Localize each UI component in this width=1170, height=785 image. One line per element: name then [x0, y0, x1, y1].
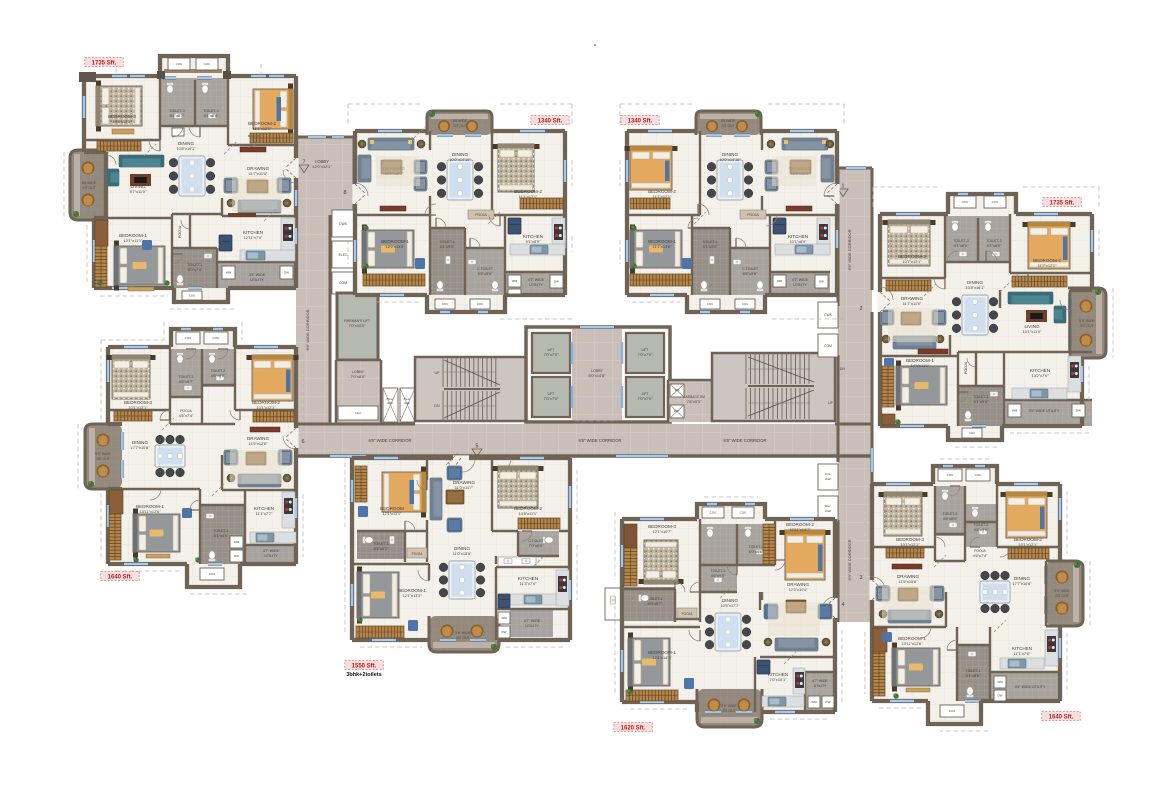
svg-text:WM: WM — [501, 616, 507, 620]
svg-text:14'4"x11'1": 14'4"x11'1" — [911, 363, 931, 368]
svg-text:10'5"x17'7": 10'5"x17'7" — [720, 603, 740, 608]
svg-text:6'0"x6'6": 6'0"x6'6" — [749, 549, 764, 554]
svg-text:6'6" WIDE CORRIDOR: 6'6" WIDE CORRIDOR — [847, 539, 852, 580]
svg-text:10'1"x11'0": 10'1"x11'0" — [1023, 329, 1043, 334]
svg-text:Hyd: Hyd — [355, 411, 361, 415]
svg-text:POOJA: POOJA — [412, 552, 424, 556]
svg-text:DW: DW — [998, 694, 1003, 698]
svg-text:COU: COU — [740, 511, 747, 515]
svg-text:4'6"x9'0": 4'6"x9'0" — [711, 573, 726, 578]
svg-text:UTILITY: UTILITY — [793, 283, 807, 287]
svg-text:WM: WM — [1012, 409, 1018, 413]
svg-text:5'6" WIDE: 5'6" WIDE — [721, 704, 737, 708]
svg-text:11'1"x7'7": 11'1"x7'7" — [256, 511, 273, 516]
svg-text:Elec: Elec — [825, 504, 831, 508]
svg-text:WM: WM — [234, 540, 240, 544]
svg-text:12'1"x10'7": 12'1"x10'7" — [652, 529, 672, 534]
svg-text:11'1"x7'8": 11'1"x7'8" — [1014, 651, 1031, 656]
svg-text:5: 5 — [476, 444, 479, 450]
svg-text:UP: UP — [435, 371, 441, 375]
svg-text:7'0"x6'0": 7'0"x6'0" — [529, 543, 544, 548]
svg-text:12'2"x13'8": 12'2"x13'8" — [385, 244, 405, 249]
svg-text:4'6"x8'0": 4'6"x8'0" — [211, 373, 226, 378]
svg-text:5'6" WIDE: 5'6" WIDE — [95, 452, 111, 456]
svg-text:COU: COU — [209, 572, 215, 576]
svg-text:SIT OUT: SIT OUT — [96, 457, 109, 461]
svg-text:5'1"x9'0": 5'1"x9'0" — [703, 244, 718, 249]
svg-text:11'5"x10'6": 11'5"x10'6" — [899, 579, 919, 584]
svg-text:13'11"x12'6": 13'11"x12'6" — [901, 641, 923, 646]
svg-text:10'0"x14'10": 10'0"x14'10" — [449, 157, 471, 162]
svg-text:UP: UP — [828, 401, 834, 405]
svg-text:7'6"x5'3": 7'6"x5'3" — [687, 399, 702, 404]
svg-text:POOJA: POOJA — [475, 213, 487, 217]
svg-text:Press: Press — [387, 397, 394, 401]
svg-text:COU: COU — [742, 302, 748, 306]
svg-text:1640 Sft.: 1640 Sft. — [1049, 715, 1074, 721]
svg-text:COU: COU — [962, 200, 969, 204]
svg-text:13'2"x7'0": 13'2"x7'0" — [1031, 373, 1049, 378]
svg-text:7'0"x7'0": 7'0"x7'0" — [544, 396, 559, 401]
svg-text:12'0"x12'1": 12'0"x12'1" — [312, 164, 332, 169]
svg-text:COU: COU — [949, 709, 955, 713]
svg-text:COM: COM — [339, 281, 347, 285]
svg-text:1620 Sft.: 1620 Sft. — [621, 726, 646, 732]
svg-text:COU: COU — [189, 294, 195, 298]
svg-text:4'7" WIDE: 4'7" WIDE — [812, 679, 828, 683]
svg-text:COU: COU — [992, 200, 999, 204]
svg-text:12'1"x14'7": 12'1"x14'7" — [652, 655, 672, 660]
svg-text:UTILITY: UTILITY — [250, 278, 264, 282]
svg-text:17'7"x10'6": 17'7"x10'6" — [1012, 581, 1032, 586]
svg-text:10'8"x11'1": 10'8"x11'1" — [519, 511, 539, 516]
svg-text:11'3"x7'4": 11'3"x7'4" — [520, 581, 537, 586]
svg-text:7'0"x7'0": 7'0"x7'0" — [544, 352, 559, 357]
svg-text:POOJA: POOJA — [747, 213, 759, 217]
svg-text:10'1"x12'1": 10'1"x12'1" — [900, 542, 920, 547]
svg-text:4'6"x8'0": 4'6"x8'0" — [943, 516, 958, 521]
svg-text:COU: COU — [204, 62, 211, 66]
svg-text:5'1"x8'0": 5'1"x8'0" — [954, 243, 969, 248]
svg-text:COU: COU — [185, 336, 192, 340]
svg-text:WM: WM — [512, 279, 518, 283]
svg-text:SIT OUT: SIT OUT — [1055, 594, 1068, 598]
svg-text:2: 2 — [859, 306, 862, 312]
svg-text:11'0"x11'7": 11'0"x11'7" — [455, 485, 474, 490]
svg-text:1735 Sft.: 1735 Sft. — [92, 61, 117, 67]
svg-text:Press: Press — [404, 397, 411, 401]
svg-text:1340 Sft.: 1340 Sft. — [628, 119, 653, 125]
svg-text:WM: WM — [997, 680, 1003, 684]
svg-text:POOJA: POOJA — [964, 361, 968, 374]
svg-text:6: 6 — [301, 439, 304, 445]
svg-text:4'6"x7'4": 4'6"x7'4" — [179, 413, 194, 418]
svg-text:8'0"x5'7": 8'0"x5'7" — [648, 601, 663, 606]
svg-text:UTILITY: UTILITY — [814, 684, 827, 688]
svg-text:DW: DW — [554, 280, 559, 284]
svg-text:6'6" WIDE CORRIDOR: 6'6" WIDE CORRIDOR — [723, 438, 766, 443]
svg-text:5'1"x8'0": 5'1"x8'0" — [204, 113, 219, 118]
svg-text:5'6" WIDE: 5'6" WIDE — [1079, 319, 1095, 323]
svg-text:COU: COU — [176, 62, 183, 66]
svg-text:4'7" WIDE: 4'7" WIDE — [528, 278, 545, 282]
svg-text:5'1"x9'0": 5'1"x9'0" — [440, 244, 455, 249]
svg-text:SIT OUT: SIT OUT — [82, 186, 95, 190]
svg-text:10'1"x12'1": 10'1"x12'1" — [256, 405, 276, 410]
svg-text:10'8"x12'1": 10'8"x12'1" — [112, 119, 132, 124]
svg-text:11'7"x11'0": 11'7"x11'0" — [903, 301, 922, 306]
svg-text:11'1"x12'1": 11'1"x12'1" — [253, 126, 273, 131]
svg-text:5'6 WIDE: 5'6 WIDE — [453, 119, 468, 123]
svg-text:WM: WM — [811, 700, 817, 704]
svg-text:6'6"x5'6": 6'6"x5'6" — [743, 271, 758, 276]
svg-text:6'6" WIDE CORRIDOR: 6'6" WIDE CORRIDOR — [847, 229, 852, 270]
svg-text:shaft: shaft — [825, 509, 831, 513]
svg-text:7'0"x8'0": 7'0"x8'0" — [351, 374, 366, 379]
svg-text:1: 1 — [842, 184, 845, 190]
svg-text:6'6" WIDE CORRIDOR: 6'6" WIDE CORRIDOR — [368, 438, 411, 443]
svg-text:shaft: shaft — [404, 401, 410, 405]
svg-text:10'11"x10'7": 10'11"x10'7" — [789, 527, 811, 532]
svg-text:10'8"x16'1": 10'8"x16'1" — [965, 285, 985, 290]
svg-text:DW: DW — [826, 700, 831, 704]
svg-text:11'1"x12'1": 11'1"x12'1" — [653, 194, 673, 199]
svg-text:3'9" WIDE: 3'9" WIDE — [249, 273, 266, 277]
svg-text:4: 4 — [841, 602, 844, 608]
svg-text:4'6"x9'7": 4'6"x9'7" — [179, 379, 194, 384]
svg-text:WM: WM — [777, 279, 783, 283]
svg-text:1550 Sft.: 1550 Sft. — [352, 664, 377, 670]
svg-text:4'7" WIDE: 4'7" WIDE — [792, 278, 809, 282]
svg-text:5'1"x8'6": 5'1"x8'6" — [214, 533, 229, 538]
svg-text:8: 8 — [343, 190, 346, 196]
svg-text:8'0"x14'8": 8'0"x14'8" — [588, 373, 606, 378]
svg-text:CWS: CWS — [824, 313, 831, 317]
svg-text:COU: COU — [477, 302, 483, 306]
svg-text:8'4"x5'1": 8'4"x5'1" — [374, 546, 389, 551]
svg-text:UTILITY: UTILITY — [529, 283, 543, 287]
svg-text:5'1"x8'0": 5'1"x8'0" — [987, 243, 1002, 248]
svg-text:DW: DW — [234, 554, 239, 558]
svg-text:7: 7 — [303, 160, 306, 166]
svg-text:5'6" WIDE: 5'6" WIDE — [1054, 589, 1070, 593]
svg-text:12'1"x11'1": 12'1"x11'1" — [124, 238, 144, 243]
svg-text:10'0"x14'10": 10'0"x14'10" — [719, 157, 741, 162]
svg-text:10'8"x16'1": 10'8"x16'1" — [176, 146, 196, 151]
svg-text:11'2"x12'1": 11'2"x12'1" — [1038, 263, 1058, 268]
svg-text:3'9" WIDE UTILITY: 3'9" WIDE UTILITY — [1029, 409, 1060, 413]
svg-text:COU: COU — [442, 302, 448, 306]
svg-text:4'6"x7'4": 4'6"x7'4" — [973, 553, 988, 558]
svg-text:5'1"x9'0": 5'1"x9'0" — [974, 399, 989, 404]
svg-text:SIT-OUT: SIT-OUT — [722, 709, 735, 713]
svg-text:6'0"x7'4": 6'0"x7'4" — [188, 267, 203, 272]
svg-text:shaft: shaft — [387, 401, 393, 405]
svg-text:5'1"x8'7": 5'1"x8'7" — [170, 113, 185, 118]
svg-text:DN: DN — [434, 404, 440, 408]
svg-text:COU: COU — [707, 302, 713, 306]
svg-text:10'1"x12'1": 10'1"x12'1" — [128, 405, 148, 410]
svg-text:7'0"x7'0": 7'0"x7'0" — [638, 352, 653, 357]
svg-text:SIT-OUT: SIT-OUT — [1080, 324, 1093, 328]
svg-text:13'11"x12'6": 13'11"x12'6" — [139, 509, 161, 514]
svg-text:WD: WD — [675, 388, 680, 392]
svg-text:SIT OUT: SIT OUT — [721, 124, 734, 128]
svg-text:9'7"x11'0": 9'7"x11'0" — [130, 189, 147, 194]
svg-text:3bhk+2toilets: 3bhk+2toilets — [346, 672, 381, 678]
svg-text:WM: WM — [226, 271, 232, 275]
svg-text:10'1"x8'9": 10'1"x8'9" — [789, 239, 807, 244]
svg-text:6'6"x5'6": 6'6"x5'6" — [478, 271, 493, 276]
svg-text:7'0"x10'1": 7'0"x10'1" — [769, 677, 787, 682]
svg-text:POOJA: POOJA — [682, 612, 694, 616]
svg-text:DN: DN — [840, 367, 846, 371]
svg-text:DRY: DRY — [674, 409, 680, 413]
svg-text:ELEC: ELEC — [339, 253, 348, 257]
svg-text:12'3"x10'0": 12'3"x10'0" — [788, 587, 808, 592]
svg-text:4'7" WIDE: 4'7" WIDE — [524, 619, 541, 623]
svg-text:COM: COM — [824, 344, 832, 348]
svg-text:Fire: Fire — [826, 472, 831, 476]
svg-text:COU: COU — [710, 511, 717, 515]
svg-text:DW: DW — [284, 271, 289, 275]
svg-text:DW: DW — [502, 630, 507, 634]
svg-text:COU: COU — [969, 431, 975, 435]
svg-text:11'7"x11'0": 11'7"x11'0" — [249, 171, 268, 176]
svg-text:7'0"x10'0": 7'0"x10'0" — [348, 323, 366, 328]
svg-text:4'7" WIDE: 4'7" WIDE — [263, 549, 280, 553]
svg-text:9'1"x8'9": 9'1"x8'9" — [526, 239, 541, 244]
svg-text:1640 Sft.: 1640 Sft. — [108, 575, 133, 581]
svg-text:shaft: shaft — [825, 477, 831, 481]
svg-text:6'6" WIDE CORRIDOR: 6'6" WIDE CORRIDOR — [305, 309, 310, 350]
svg-text:DW: DW — [1076, 409, 1081, 413]
svg-text:11'1"x13'8": 11'1"x13'8" — [653, 244, 673, 249]
svg-text:12'1"x13'3": 12'1"x13'3" — [402, 593, 422, 598]
svg-text:5'6" WIDE: 5'6" WIDE — [455, 631, 471, 635]
svg-text:3: 3 — [859, 575, 862, 581]
svg-text:11'0"x15'9": 11'0"x15'9" — [453, 551, 473, 556]
svg-text:10'7"x12'1": 10'7"x12'1" — [902, 259, 922, 264]
svg-text:7'0"x7'0": 7'0"x7'0" — [638, 396, 653, 401]
svg-text:POOJA: POOJA — [178, 225, 182, 238]
svg-text:1340 Sft.: 1340 Sft. — [538, 119, 563, 125]
svg-text:COU: COU — [975, 473, 982, 477]
svg-text:SIT OUT: SIT OUT — [456, 636, 469, 640]
svg-text:UTILITY: UTILITY — [264, 554, 278, 558]
svg-text:5'6 WIDE: 5'6 WIDE — [82, 181, 97, 185]
svg-text:17'7"x10'6": 17'7"x10'6" — [130, 445, 150, 450]
svg-text:SIT OUT: SIT OUT — [453, 124, 466, 128]
svg-text:DW: DW — [819, 280, 824, 284]
svg-text:5'6 WIDE: 5'6 WIDE — [721, 119, 736, 123]
svg-text:5'1"x8'6": 5'1"x8'6" — [966, 673, 981, 678]
svg-text:4'6" WIDE UTILITY: 4'6" WIDE UTILITY — [1015, 685, 1046, 689]
svg-text:UTILITY: UTILITY — [525, 624, 539, 628]
svg-text:COU: COU — [947, 473, 954, 477]
svg-text:11'5"x12'6": 11'5"x12'6" — [249, 441, 269, 446]
svg-text:1735 Sft.: 1735 Sft. — [1050, 201, 1075, 207]
svg-text:COU: COU — [213, 336, 220, 340]
svg-text:12'11"x7'0": 12'11"x7'0" — [244, 235, 264, 240]
svg-text:12'1"x11'1": 12'1"x11'1" — [383, 511, 403, 516]
svg-text:4'6"x9'0": 4'6"x9'0" — [974, 527, 989, 532]
svg-text:11'1"x12'1": 11'1"x12'1" — [519, 194, 539, 199]
svg-text:CWS: CWS — [339, 222, 348, 226]
svg-text:6'6" WIDE CORRIDOR: 6'6" WIDE CORRIDOR — [578, 438, 621, 443]
svg-text:10'1"x12'1": 10'1"x12'1" — [1018, 542, 1038, 547]
